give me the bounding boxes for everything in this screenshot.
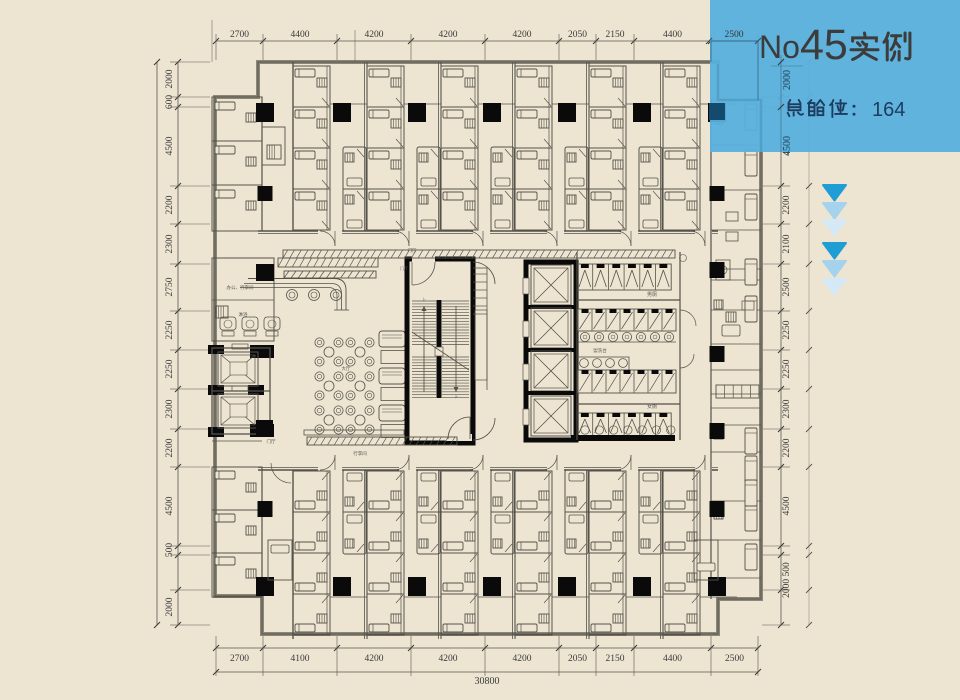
svg-text:2250: 2250: [782, 320, 792, 339]
svg-text:2250: 2250: [165, 359, 175, 378]
svg-text:4400: 4400: [663, 30, 682, 40]
svg-text:4200: 4200: [513, 654, 532, 664]
svg-text:4200: 4200: [365, 30, 384, 40]
svg-text:2300: 2300: [782, 399, 792, 418]
svg-text:4500: 4500: [165, 496, 175, 515]
svg-text:2300: 2300: [165, 399, 175, 418]
svg-text:600: 600: [165, 95, 175, 110]
svg-text:门厅: 门厅: [400, 265, 408, 271]
svg-text:2000: 2000: [165, 69, 175, 88]
svg-text:2500: 2500: [782, 277, 792, 296]
svg-text:2050: 2050: [568, 654, 587, 664]
svg-text:：: ：: [850, 102, 866, 119]
svg-text:上: 上: [422, 296, 426, 302]
svg-text:4500: 4500: [782, 136, 793, 156]
svg-text:No: No: [759, 29, 800, 65]
svg-text:2000: 2000: [782, 70, 793, 90]
svg-text:4200: 4200: [439, 654, 458, 664]
svg-text:盥洗台: 盥洗台: [593, 347, 607, 354]
svg-text:4200: 4200: [513, 30, 532, 40]
svg-text:2200: 2200: [782, 195, 792, 214]
svg-text:2000: 2000: [165, 597, 175, 616]
svg-text:4100: 4100: [291, 654, 310, 664]
svg-text:2500: 2500: [725, 30, 744, 40]
svg-text:行李间: 行李间: [353, 450, 367, 457]
svg-text:门厅: 门厅: [267, 438, 276, 445]
svg-text:2200: 2200: [165, 195, 175, 214]
svg-text:2150: 2150: [606, 30, 625, 40]
svg-text:2300: 2300: [165, 234, 175, 253]
svg-text:500: 500: [165, 543, 175, 558]
svg-text:2100: 2100: [782, 234, 792, 253]
svg-text:2500: 2500: [725, 654, 744, 664]
svg-text:2050: 2050: [568, 30, 587, 40]
svg-text:164: 164: [872, 99, 905, 121]
svg-text:4500: 4500: [165, 136, 175, 155]
svg-text:2250: 2250: [782, 359, 792, 378]
svg-text:男厕: 男厕: [647, 292, 657, 298]
svg-text:门厅: 门厅: [408, 247, 417, 254]
svg-text:4200: 4200: [439, 30, 458, 40]
svg-text:2250: 2250: [165, 320, 175, 339]
svg-text:2200: 2200: [782, 438, 792, 457]
svg-text:4400: 4400: [663, 654, 682, 664]
svg-text:2750: 2750: [165, 277, 175, 296]
svg-text:30800: 30800: [475, 676, 500, 687]
svg-text:2700: 2700: [230, 30, 249, 40]
svg-text:4400: 4400: [291, 30, 310, 40]
svg-text:2000 500: 2000 500: [782, 562, 792, 598]
svg-text:大厅: 大厅: [342, 365, 351, 372]
svg-text:45: 45: [800, 21, 848, 69]
svg-text:2700: 2700: [230, 654, 249, 664]
svg-text:2150: 2150: [606, 654, 625, 664]
svg-text:4500: 4500: [782, 496, 792, 515]
svg-text:4200: 4200: [365, 654, 384, 664]
svg-text:2200: 2200: [165, 438, 175, 457]
svg-text:下: 下: [454, 394, 458, 399]
